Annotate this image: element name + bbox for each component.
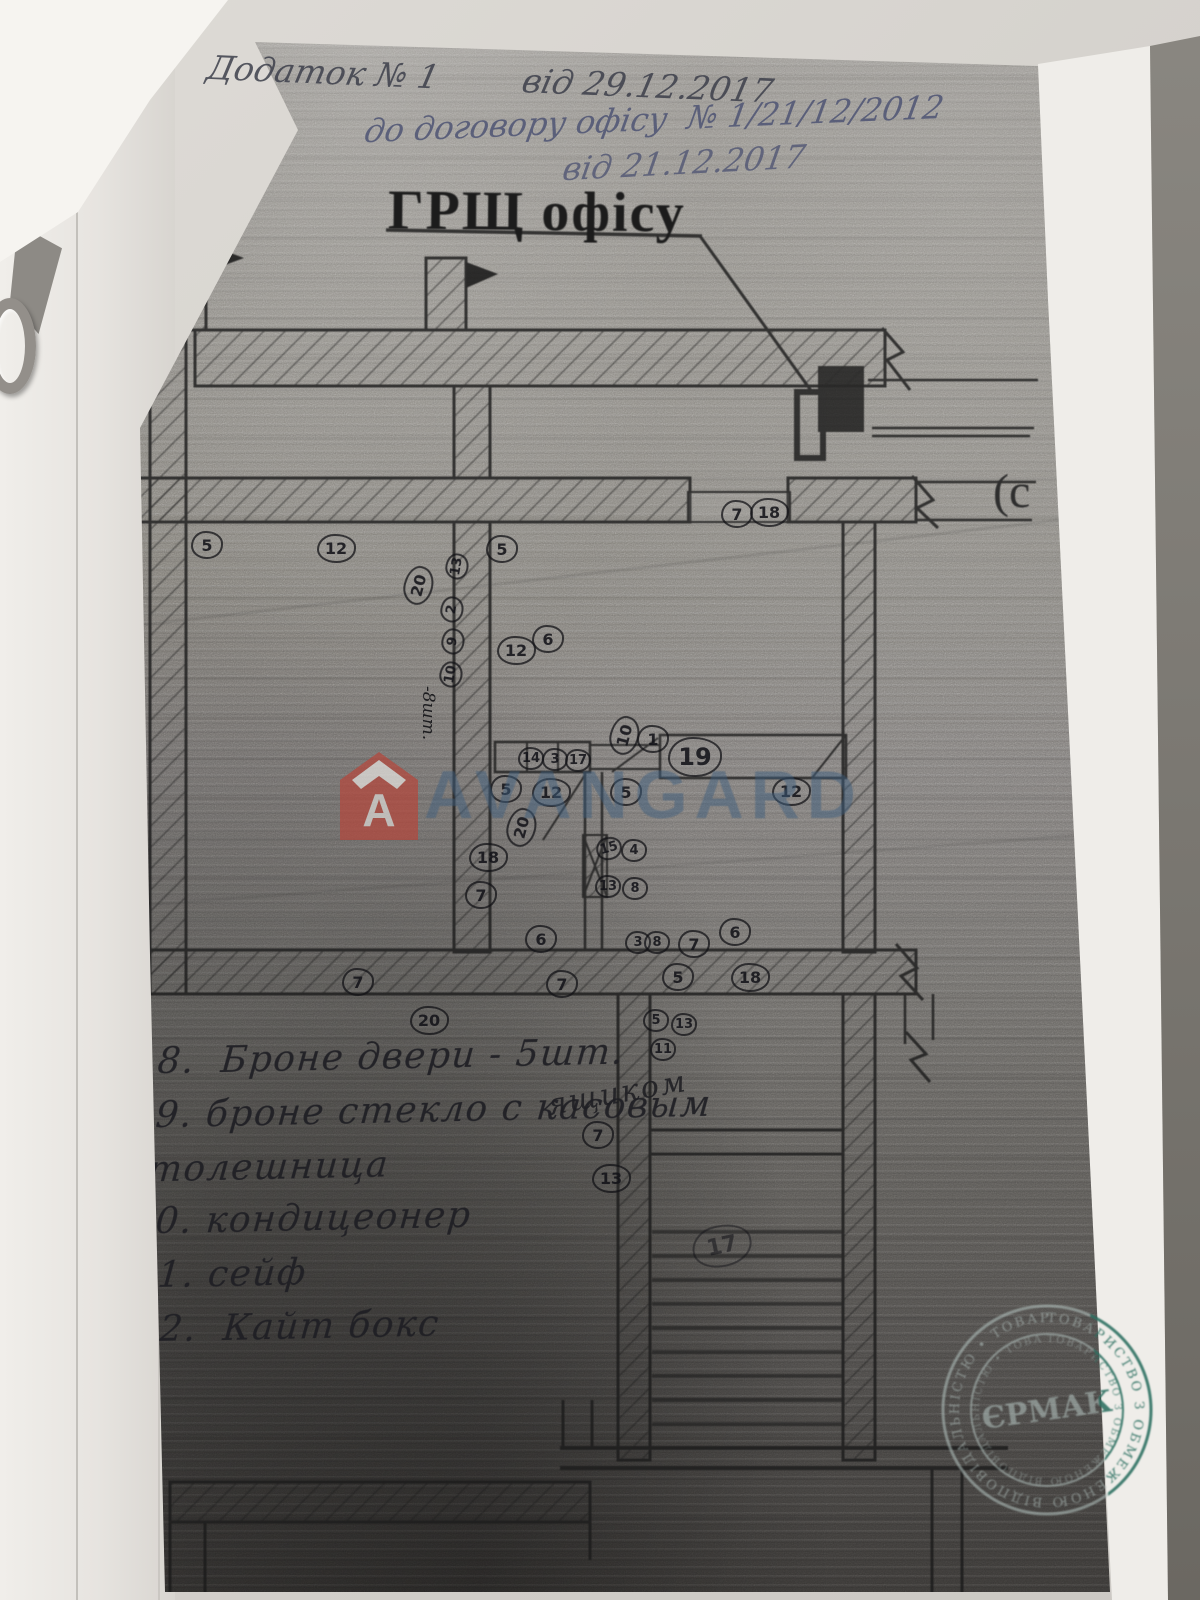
legend-line-5: 21. сейф xyxy=(132,1252,309,1297)
svg-text:ЄРМАК: ЄРМАК xyxy=(980,1384,1115,1437)
photographed-document: 5125201329107181261011431751251220187154… xyxy=(0,0,1200,1600)
legend-line-1: 18. Броне двери - 5шт. xyxy=(132,1032,627,1083)
logo-letter: A xyxy=(362,784,395,836)
avangard-watermark: AVANGARD xyxy=(424,756,863,834)
legend-line-2: 19. броне стекло с касовым xyxy=(130,1084,714,1137)
legend-line-4: 20. кондицеонер xyxy=(130,1195,474,1243)
paper-crease xyxy=(76,140,78,1600)
avangard-logo-icon: A xyxy=(340,752,418,840)
company-stamp: ТОВАРИСТВО З ОБМЕЖЕНОЮ ВІДПОВІДАЛЬНІСТЮ … xyxy=(930,1292,1170,1532)
legend-line-3: столешница xyxy=(125,1144,391,1191)
legend-line-6: 22. Кайт бокс xyxy=(134,1304,442,1351)
